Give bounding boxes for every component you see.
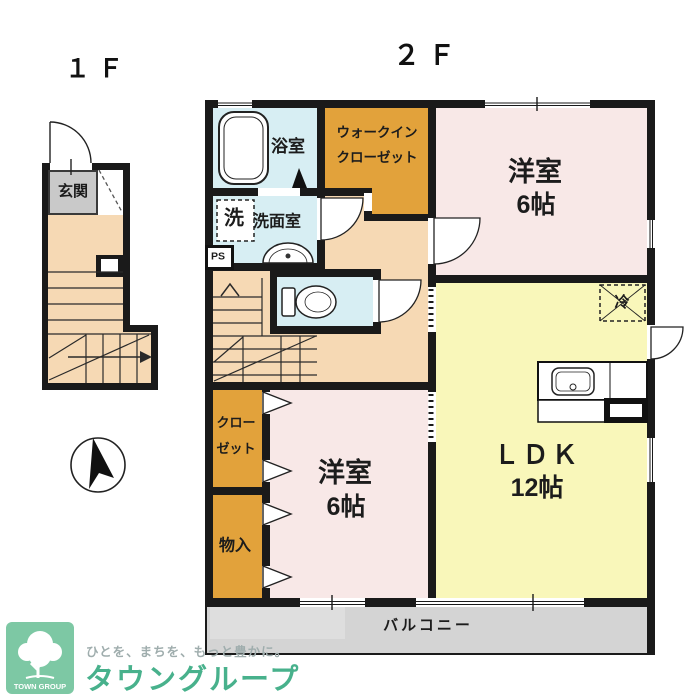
pipe-space-label: PS	[211, 251, 225, 262]
walkin-closet-door	[364, 193, 372, 211]
compass-north-arrow-icon	[71, 438, 125, 492]
ldk-name-label: ＬＤＫ	[493, 441, 580, 468]
ldk-sliding-opening	[428, 287, 436, 332]
closet-folding-doors	[262, 392, 291, 588]
bedroom-bottom-size-label: 6帖	[327, 494, 366, 520]
kitchen-counter-icon	[538, 362, 647, 422]
bedroom-top-door	[428, 218, 480, 264]
ldk-size-label: 12帖	[511, 475, 564, 501]
window-bathroom-top	[218, 100, 252, 108]
window-ldk-right	[647, 438, 655, 482]
floor-plan: １Ｆ ２Ｆ	[0, 0, 700, 700]
logo-text: TOWN GROUP	[14, 682, 66, 691]
bathtub-icon	[219, 112, 268, 184]
walkin-closet-label-2: クローゼット	[337, 151, 418, 165]
balcony-label: バルコニー	[383, 618, 473, 634]
closet-label-1: クロー	[216, 416, 255, 430]
window-ldk-balcony	[416, 594, 584, 611]
genkan-label: 玄関	[58, 184, 88, 200]
refrigerator-label: 冷	[614, 295, 629, 311]
washroom-label: 洗面室	[253, 215, 301, 232]
washbasin-icon	[263, 243, 313, 263]
toilet-door	[373, 280, 421, 322]
bedroom-top-name-label: 洋室	[508, 158, 562, 186]
washing-machine-label: 洗	[224, 209, 244, 230]
ldk-entry-door	[647, 325, 683, 359]
walkin-closet-label-1: ウォークイン	[337, 126, 418, 140]
closet-label-2: ゼット	[216, 442, 255, 456]
window-bedroom-top	[485, 97, 590, 111]
storage-label: 物入	[219, 539, 251, 556]
stairs-1f	[48, 272, 152, 383]
bedroom-bottom-sliding-door	[428, 392, 436, 442]
bathroom-label: 浴室	[271, 138, 305, 156]
brand-company-name: タウングループ	[85, 656, 300, 698]
window-bedroom-bottom-balcony	[300, 595, 365, 610]
tree-icon: TOWN GROUP	[6, 622, 74, 694]
bedroom-bottom-name-label: 洋室	[318, 459, 372, 487]
town-group-logo: TOWN GROUP	[6, 622, 74, 694]
bedroom-top-size-label: 6帖	[517, 192, 556, 218]
floorplan-shapes	[0, 0, 700, 700]
window-bedroom-top-right	[647, 220, 655, 248]
washroom-door	[317, 198, 363, 240]
toilet-icon	[282, 286, 336, 318]
